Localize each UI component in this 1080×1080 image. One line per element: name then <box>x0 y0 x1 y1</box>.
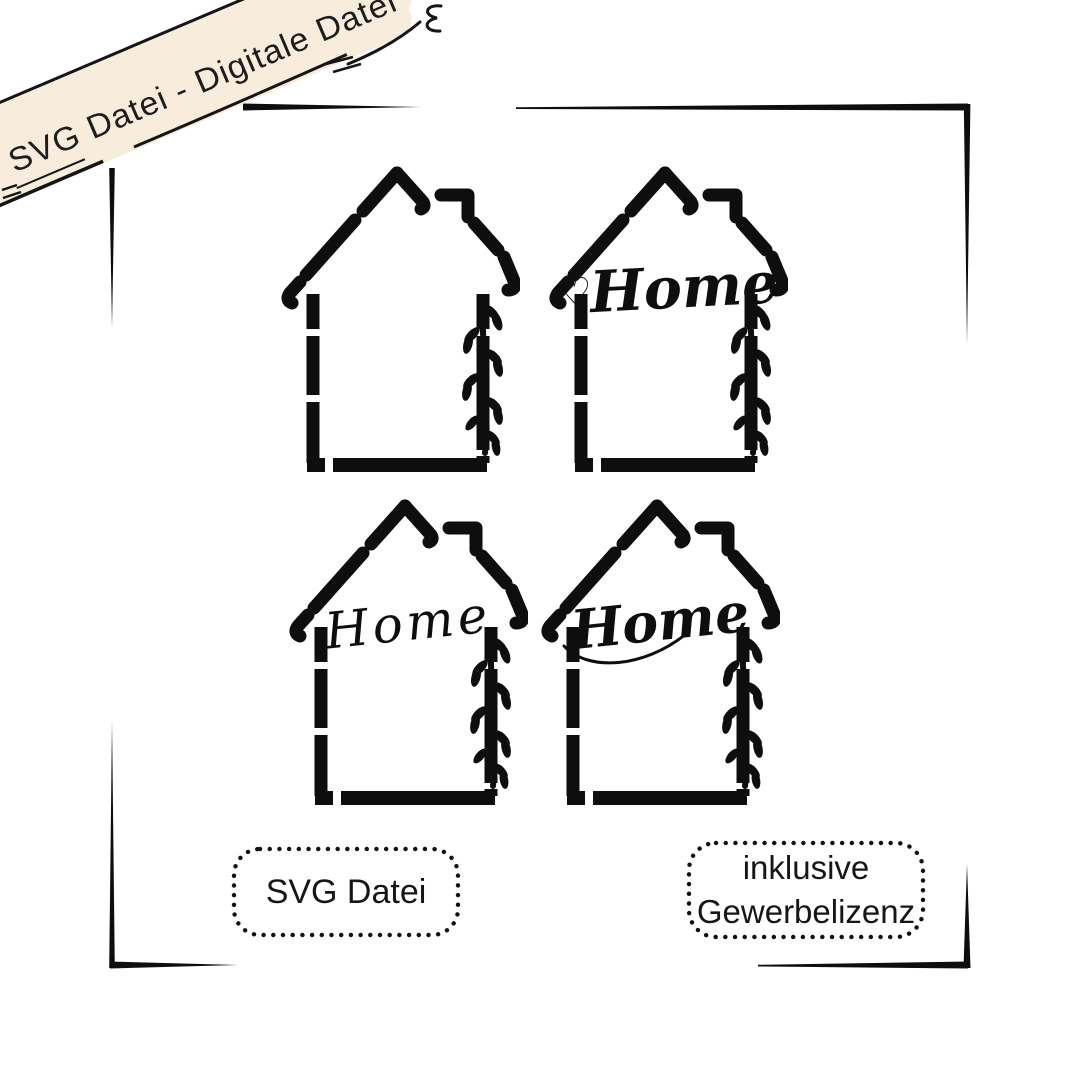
heart-icon: ♡ <box>557 269 593 315</box>
frame-left-lower-segment <box>109 720 115 968</box>
home-lettering-heart: ♡Home <box>547 254 790 323</box>
house-outline-icon <box>280 163 520 478</box>
badge-label: inklusive Gewerbelizenz <box>686 840 926 940</box>
product-image: ♡Home Home Home SVG Datei - Digitale Dat… <box>0 0 1080 1080</box>
house-2-home-heart: ♡Home <box>548 163 788 478</box>
frame-top-right-segment <box>516 104 968 111</box>
frame-left-upper-segment <box>109 168 115 328</box>
swash-flourish-icon <box>558 628 708 674</box>
badge-text-line2: Gewerbelizenz <box>697 890 915 934</box>
frame-right-upper-segment <box>964 104 971 344</box>
house-4-home-swash: Home <box>540 496 780 811</box>
badge-label: SVG Datei <box>231 846 461 938</box>
frame-top-left-segment <box>243 104 421 111</box>
badge-text-line1: inklusive <box>743 846 870 890</box>
badge-svg-datei: SVG Datei <box>231 846 461 938</box>
house-1-plain <box>280 163 520 478</box>
frame-bottom-left-segment <box>110 962 238 969</box>
home-word: Home <box>588 249 780 326</box>
badge-text: SVG Datei <box>266 870 427 915</box>
house-3-home-thin: Home <box>288 496 528 811</box>
badge-gewerbelizenz: inklusive Gewerbelizenz <box>686 840 926 940</box>
frame-right-lower-segment <box>964 864 971 968</box>
frame-bottom-right-segment <box>758 962 968 969</box>
